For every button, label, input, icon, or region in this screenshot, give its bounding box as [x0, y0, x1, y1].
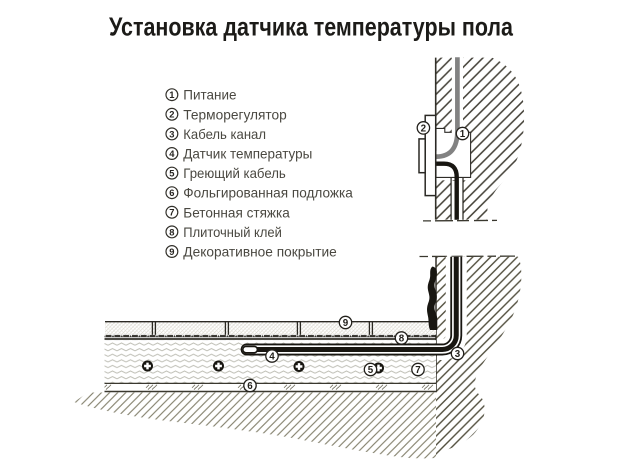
- svg-text:7: 7: [415, 365, 421, 376]
- svg-text:Плиточный клей: Плиточный клей: [183, 224, 281, 240]
- svg-text:Декоративное покрытие: Декоративное покрытие: [183, 244, 337, 260]
- svg-text:3: 3: [169, 128, 174, 139]
- svg-text:8: 8: [399, 334, 405, 345]
- svg-text:Кабель канал: Кабель канал: [183, 126, 266, 142]
- svg-text:2: 2: [169, 109, 174, 120]
- svg-text:9: 9: [343, 318, 349, 329]
- svg-text:5: 5: [169, 168, 174, 179]
- svg-text:6: 6: [247, 381, 253, 392]
- svg-text:9: 9: [169, 246, 174, 257]
- svg-text:1: 1: [169, 89, 174, 100]
- svg-text:Установка датчика температуры: Установка датчика температуры пола: [109, 12, 513, 42]
- svg-text:Питание: Питание: [183, 87, 236, 103]
- svg-text:Терморегулятор: Терморегулятор: [183, 106, 287, 122]
- svg-text:6: 6: [169, 187, 174, 198]
- svg-text:Датчик температуры: Датчик температуры: [183, 146, 312, 162]
- svg-text:Фольгированная подложка: Фольгированная подложка: [183, 185, 353, 201]
- svg-text:7: 7: [169, 207, 174, 218]
- svg-text:2: 2: [421, 124, 427, 135]
- svg-text:Греющий кабель: Греющий кабель: [183, 165, 285, 181]
- svg-text:4: 4: [169, 148, 175, 159]
- svg-text:1: 1: [460, 129, 466, 140]
- svg-text:Бетонная стяжка: Бетонная стяжка: [183, 204, 290, 220]
- svg-text:8: 8: [169, 226, 174, 237]
- svg-text:4: 4: [269, 352, 275, 363]
- svg-text:3: 3: [455, 349, 461, 360]
- svg-text:5: 5: [368, 365, 374, 376]
